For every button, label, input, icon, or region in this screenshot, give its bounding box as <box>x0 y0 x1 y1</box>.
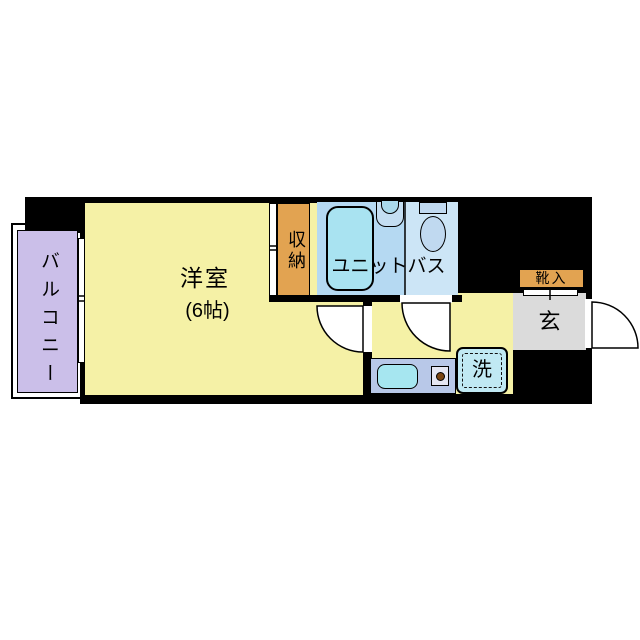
unit-bath-label: ユニットバス <box>317 257 460 278</box>
entrance-door-swing <box>592 302 638 348</box>
shoe-cabinet-label: 靴入 <box>518 271 585 286</box>
bath-door-swing <box>402 303 450 351</box>
floorplan-canvas: バルコニー 洋室 (6帖) 収納 ユニットバス 玄 靴入 洗 <box>0 0 640 640</box>
western-room-size-label: (6帖) <box>145 300 270 322</box>
room-door-swing <box>317 306 363 352</box>
balcony-label: バルコニー <box>34 246 58 396</box>
washing-machine-label: 洗 <box>456 359 508 381</box>
entrance-label: 玄 <box>513 310 586 334</box>
western-room-label: 洋室 <box>145 266 265 291</box>
closet-label: 収納 <box>283 212 305 290</box>
